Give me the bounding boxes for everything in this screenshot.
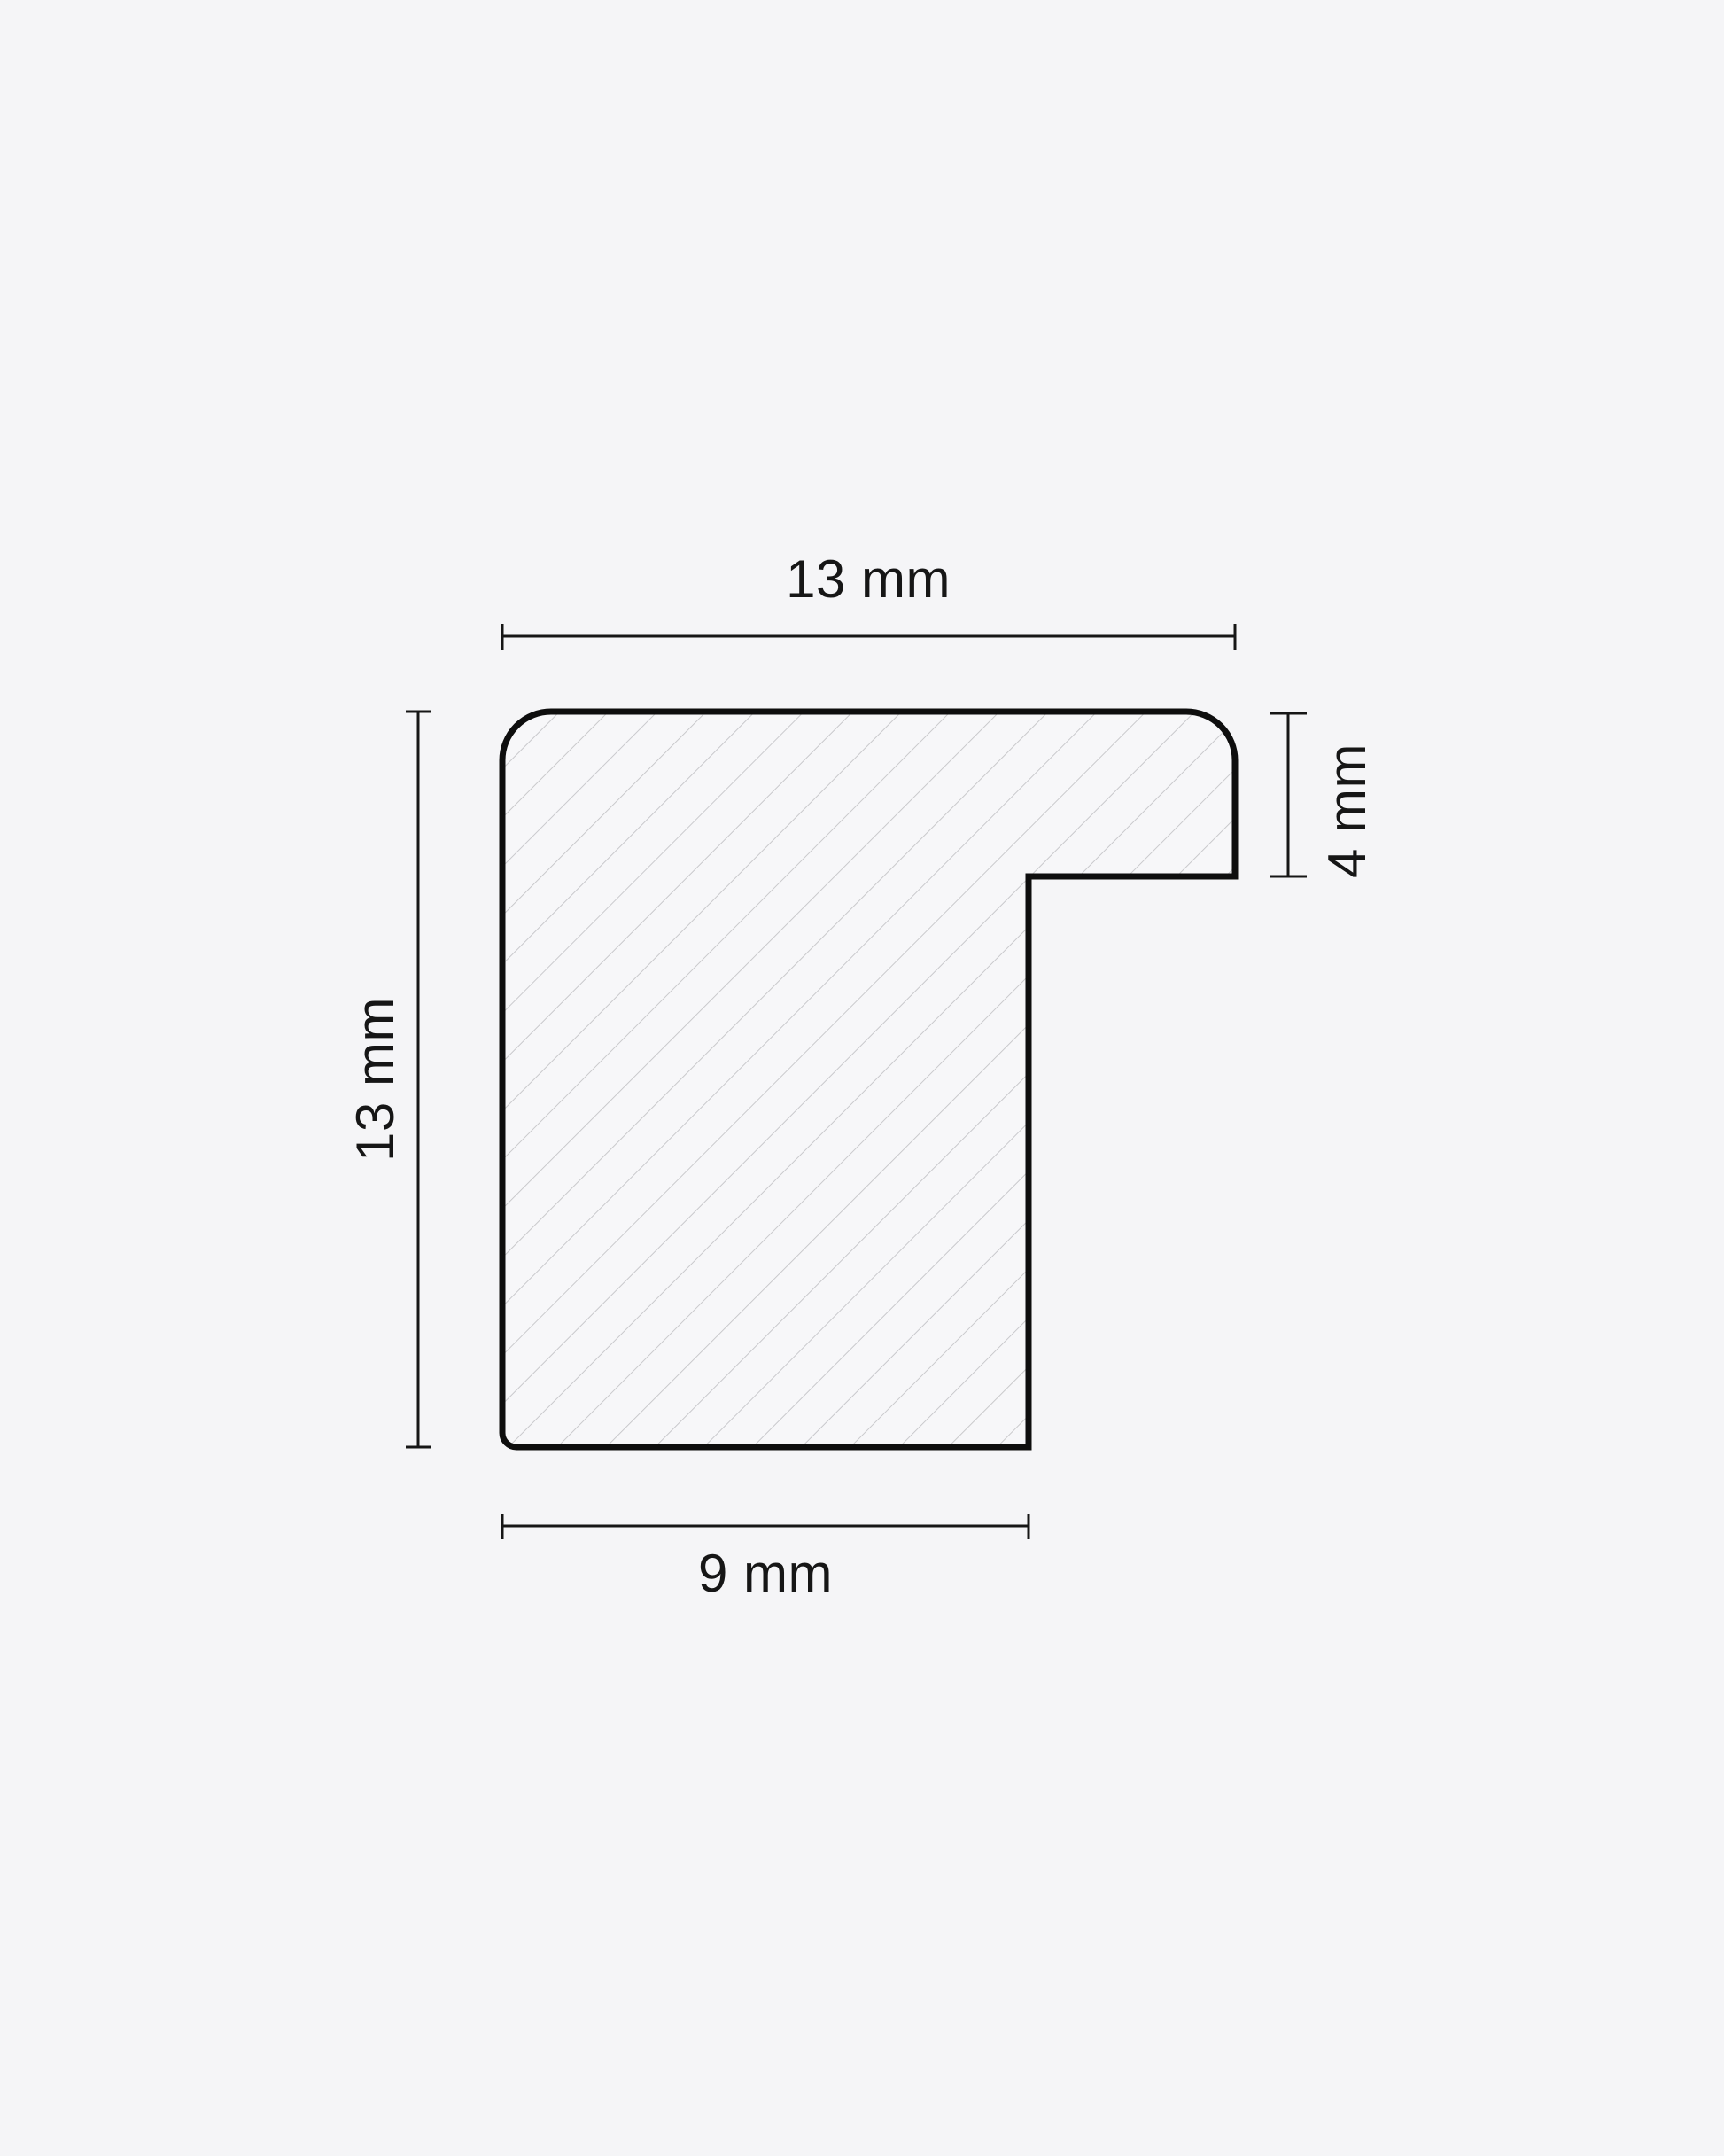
- dimension-label-top: 13 mm: [786, 553, 951, 606]
- profile-drawing: [0, 0, 1724, 2156]
- dimension-line-bottom: [502, 1514, 1029, 1539]
- profile-outline: [502, 712, 1235, 1447]
- dimension-label-right: 4 mm: [1321, 743, 1374, 878]
- diagram-canvas: 13 mm 13 mm 4 mm 9 mm: [0, 0, 1724, 2156]
- dimension-label-left: 13 mm: [349, 997, 402, 1162]
- dimension-line-right: [1270, 713, 1307, 876]
- dimension-label-bottom: 9 mm: [698, 1547, 833, 1600]
- dimension-line-left: [406, 712, 431, 1447]
- dimension-line-top: [502, 624, 1235, 650]
